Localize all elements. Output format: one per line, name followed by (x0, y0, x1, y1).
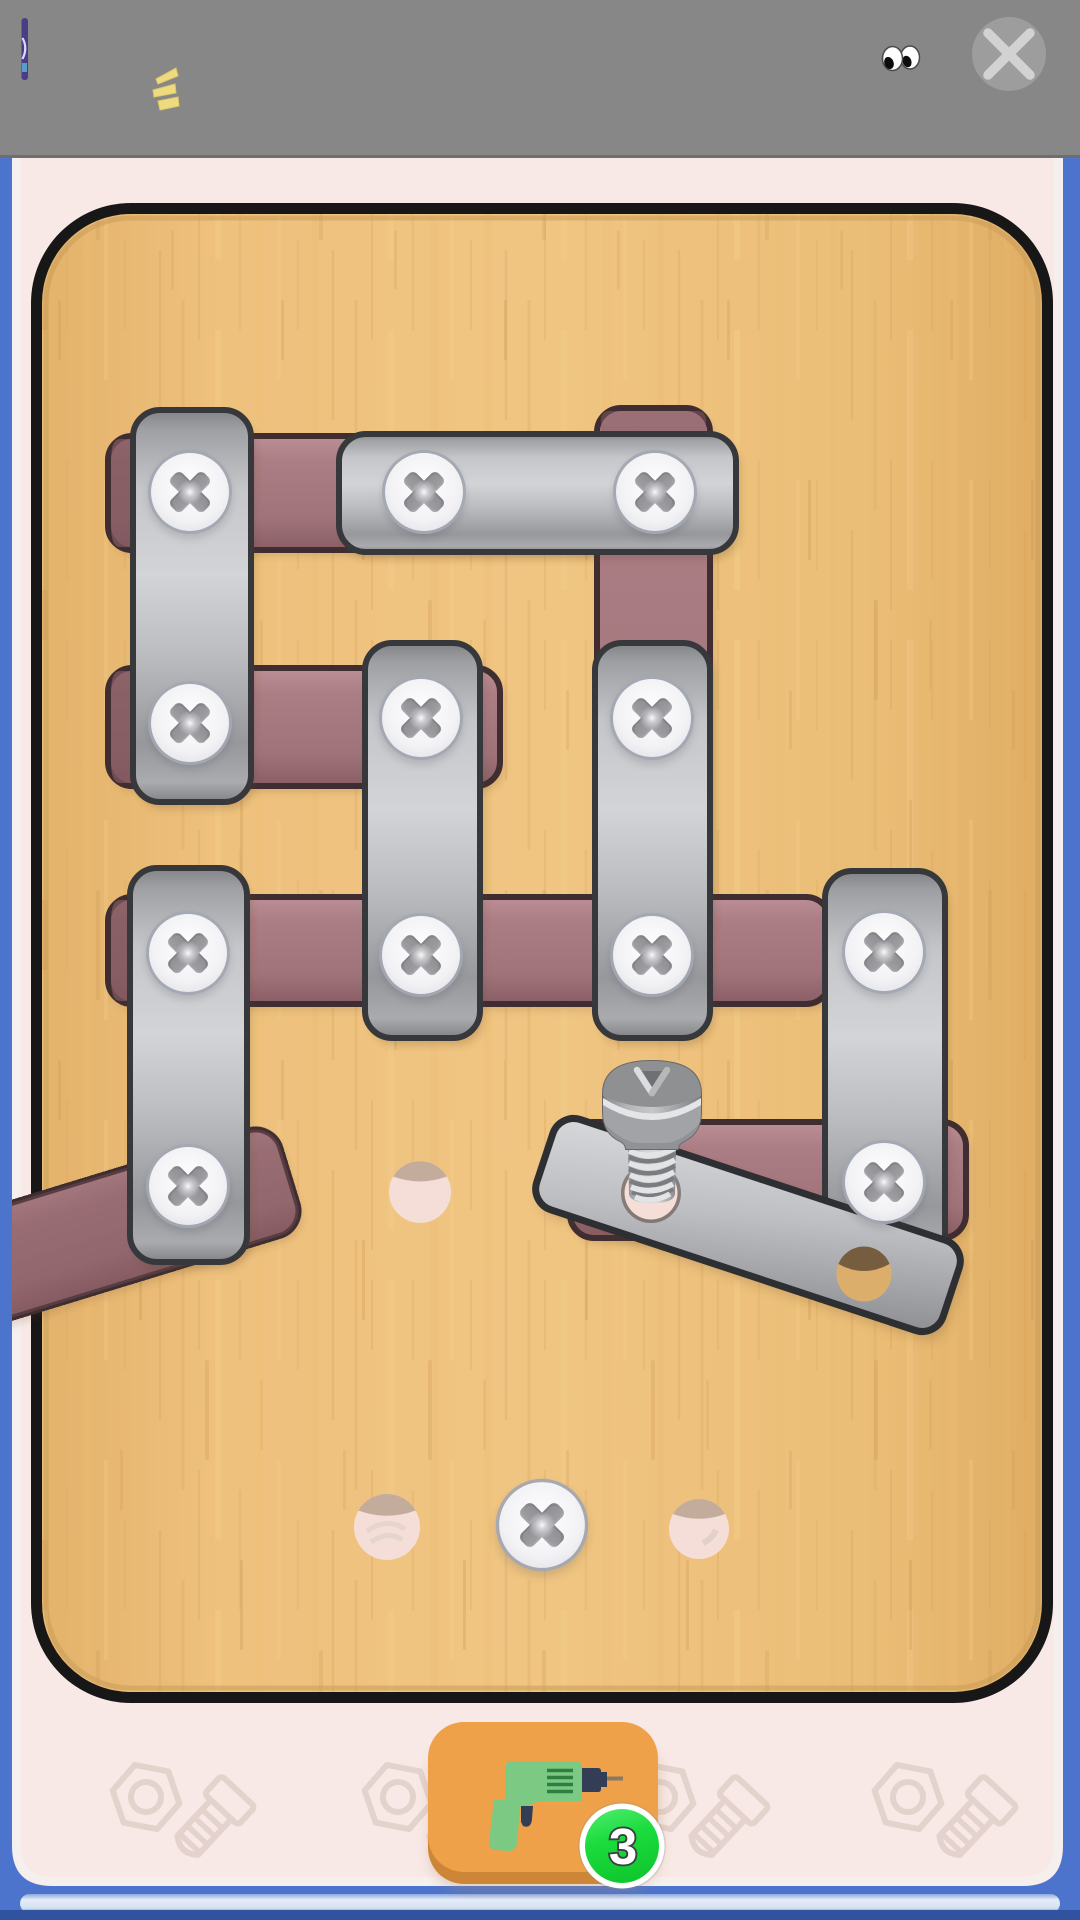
svg-text:3: 3 (609, 1818, 637, 1875)
